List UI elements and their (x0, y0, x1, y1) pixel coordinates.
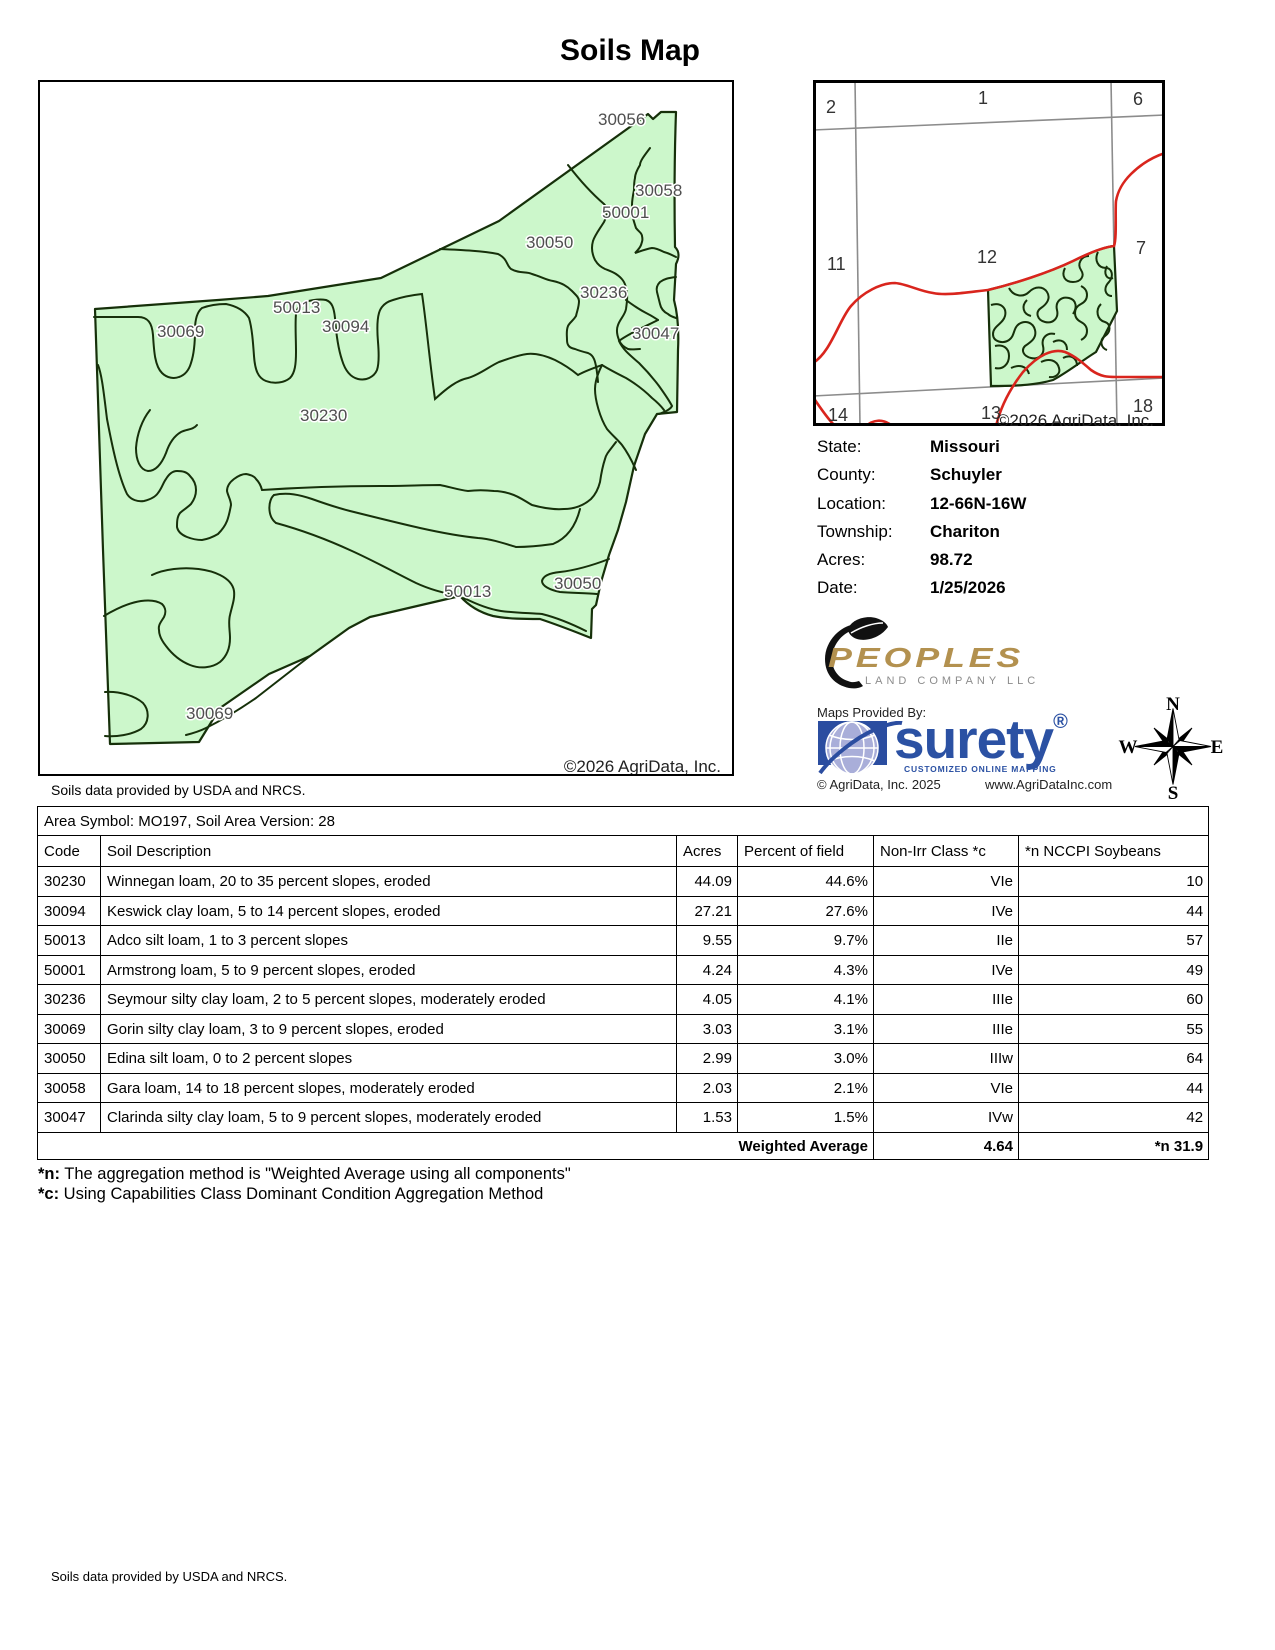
svg-text:30069: 30069 (186, 704, 233, 723)
svg-text:30230: 30230 (300, 406, 347, 425)
svg-text:S: S (1168, 783, 1179, 804)
svg-text:11: 11 (827, 254, 846, 274)
svg-text:7: 7 (1136, 238, 1146, 258)
svg-text:6: 6 (1133, 89, 1143, 109)
svg-text:50001: 50001 (602, 203, 649, 222)
svg-text:30069: 30069 (157, 322, 204, 341)
svg-text:E: E (1211, 737, 1224, 758)
svg-text:30236: 30236 (580, 283, 627, 302)
svg-text:50013: 50013 (444, 582, 491, 601)
svg-text:2: 2 (826, 97, 836, 117)
svg-text:©2026 AgriData, Inc.: ©2026 AgriData, Inc. (564, 757, 721, 776)
svg-text:50013: 50013 (273, 298, 320, 317)
svg-text:30050: 30050 (554, 574, 601, 593)
svg-text:1: 1 (978, 88, 988, 108)
svg-text:12: 12 (977, 247, 997, 267)
svg-text:30094: 30094 (322, 317, 369, 336)
svg-text:©2026 AgriData, Inc.: ©2026 AgriData, Inc. (997, 411, 1154, 426)
svg-text:30047: 30047 (632, 324, 679, 343)
svg-text:14: 14 (828, 405, 848, 425)
svg-text:30050: 30050 (526, 233, 573, 252)
svg-text:30056: 30056 (598, 110, 645, 129)
svg-text:W: W (1119, 737, 1138, 758)
svg-text:30058: 30058 (635, 181, 682, 200)
